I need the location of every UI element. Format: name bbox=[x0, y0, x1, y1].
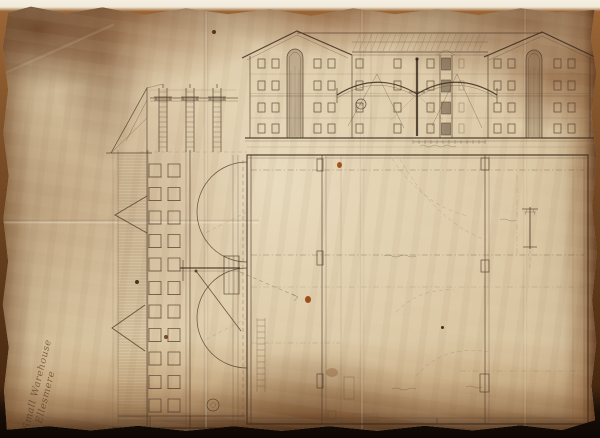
door-swing-arc bbox=[197, 268, 247, 368]
floor-plan-drawing bbox=[247, 155, 588, 424]
paper-sheet: Small Warehouse Ellesmere bbox=[1, 4, 598, 433]
side-section-drawing bbox=[106, 84, 298, 428]
ladder-details bbox=[154, 84, 226, 152]
chevron-mark bbox=[115, 196, 147, 233]
ink-drawing bbox=[0, 0, 600, 438]
annotation-squiggles bbox=[384, 219, 516, 390]
stair-detail bbox=[257, 318, 265, 392]
column-detail bbox=[522, 207, 538, 268]
crane-bracket-detail bbox=[180, 256, 298, 331]
roof-truss-sketch bbox=[111, 88, 147, 153]
door-swing-arc bbox=[197, 162, 247, 262]
door-jamb bbox=[480, 374, 489, 392]
wheel-detail bbox=[356, 99, 366, 109]
photograph-of-drawing: Small Warehouse Ellesmere bbox=[0, 0, 600, 438]
circle-detail bbox=[207, 399, 219, 411]
front-elevation-drawing bbox=[242, 31, 597, 147]
wall-hatching bbox=[118, 153, 148, 426]
construction-arcs bbox=[392, 159, 488, 376]
roof-hatching bbox=[353, 34, 486, 51]
plan-outer-wall bbox=[247, 155, 588, 424]
section-window-grid bbox=[148, 164, 181, 412]
